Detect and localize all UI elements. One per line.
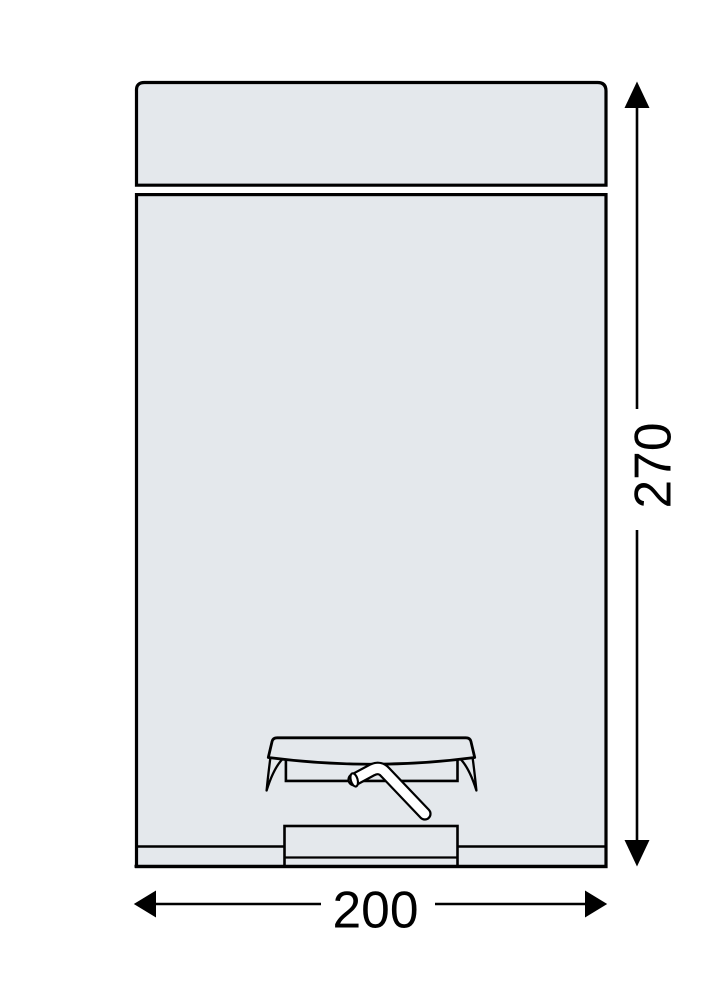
svg-text:270: 270: [624, 423, 682, 509]
svg-text:200: 200: [333, 881, 419, 939]
